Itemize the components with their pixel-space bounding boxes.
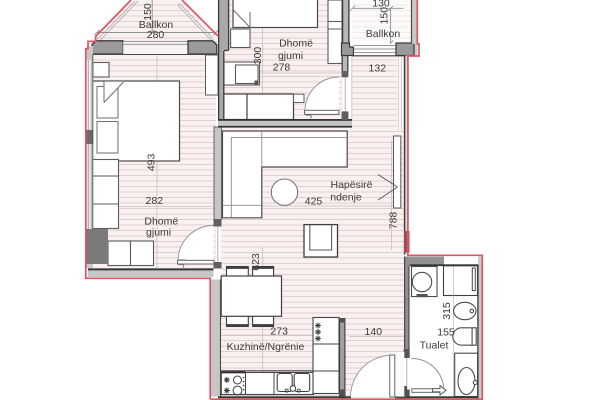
svg-text:788: 788 <box>388 212 400 230</box>
svg-text:300: 300 <box>252 47 264 65</box>
svg-text:150: 150 <box>142 3 154 21</box>
svg-text:Ballkon: Ballkon <box>366 28 401 40</box>
svg-text:493: 493 <box>145 153 157 171</box>
svg-text:425: 425 <box>305 196 323 208</box>
svg-text:Dhomë: Dhomë <box>279 38 313 50</box>
svg-text:150: 150 <box>379 7 391 25</box>
svg-text:gjumi: gjumi <box>146 227 171 239</box>
svg-text:Hapësirë: Hapësirë <box>330 179 372 191</box>
svg-text:273: 273 <box>270 325 288 337</box>
svg-text:278: 278 <box>273 62 291 74</box>
svg-text:623: 623 <box>250 253 262 271</box>
svg-text:282: 282 <box>146 195 164 207</box>
svg-text:315: 315 <box>441 302 453 320</box>
svg-text:Kuzhinë/Ngrënie: Kuzhinë/Ngrënie <box>227 341 305 353</box>
svg-text:gjumi: gjumi <box>278 50 303 62</box>
svg-text:Tualet: Tualet <box>420 340 449 352</box>
svg-text:155: 155 <box>437 327 455 339</box>
svg-text:280: 280 <box>147 29 165 41</box>
svg-text:140: 140 <box>365 326 383 338</box>
svg-text:132: 132 <box>369 63 387 75</box>
svg-text:ndenje: ndenje <box>330 192 362 204</box>
